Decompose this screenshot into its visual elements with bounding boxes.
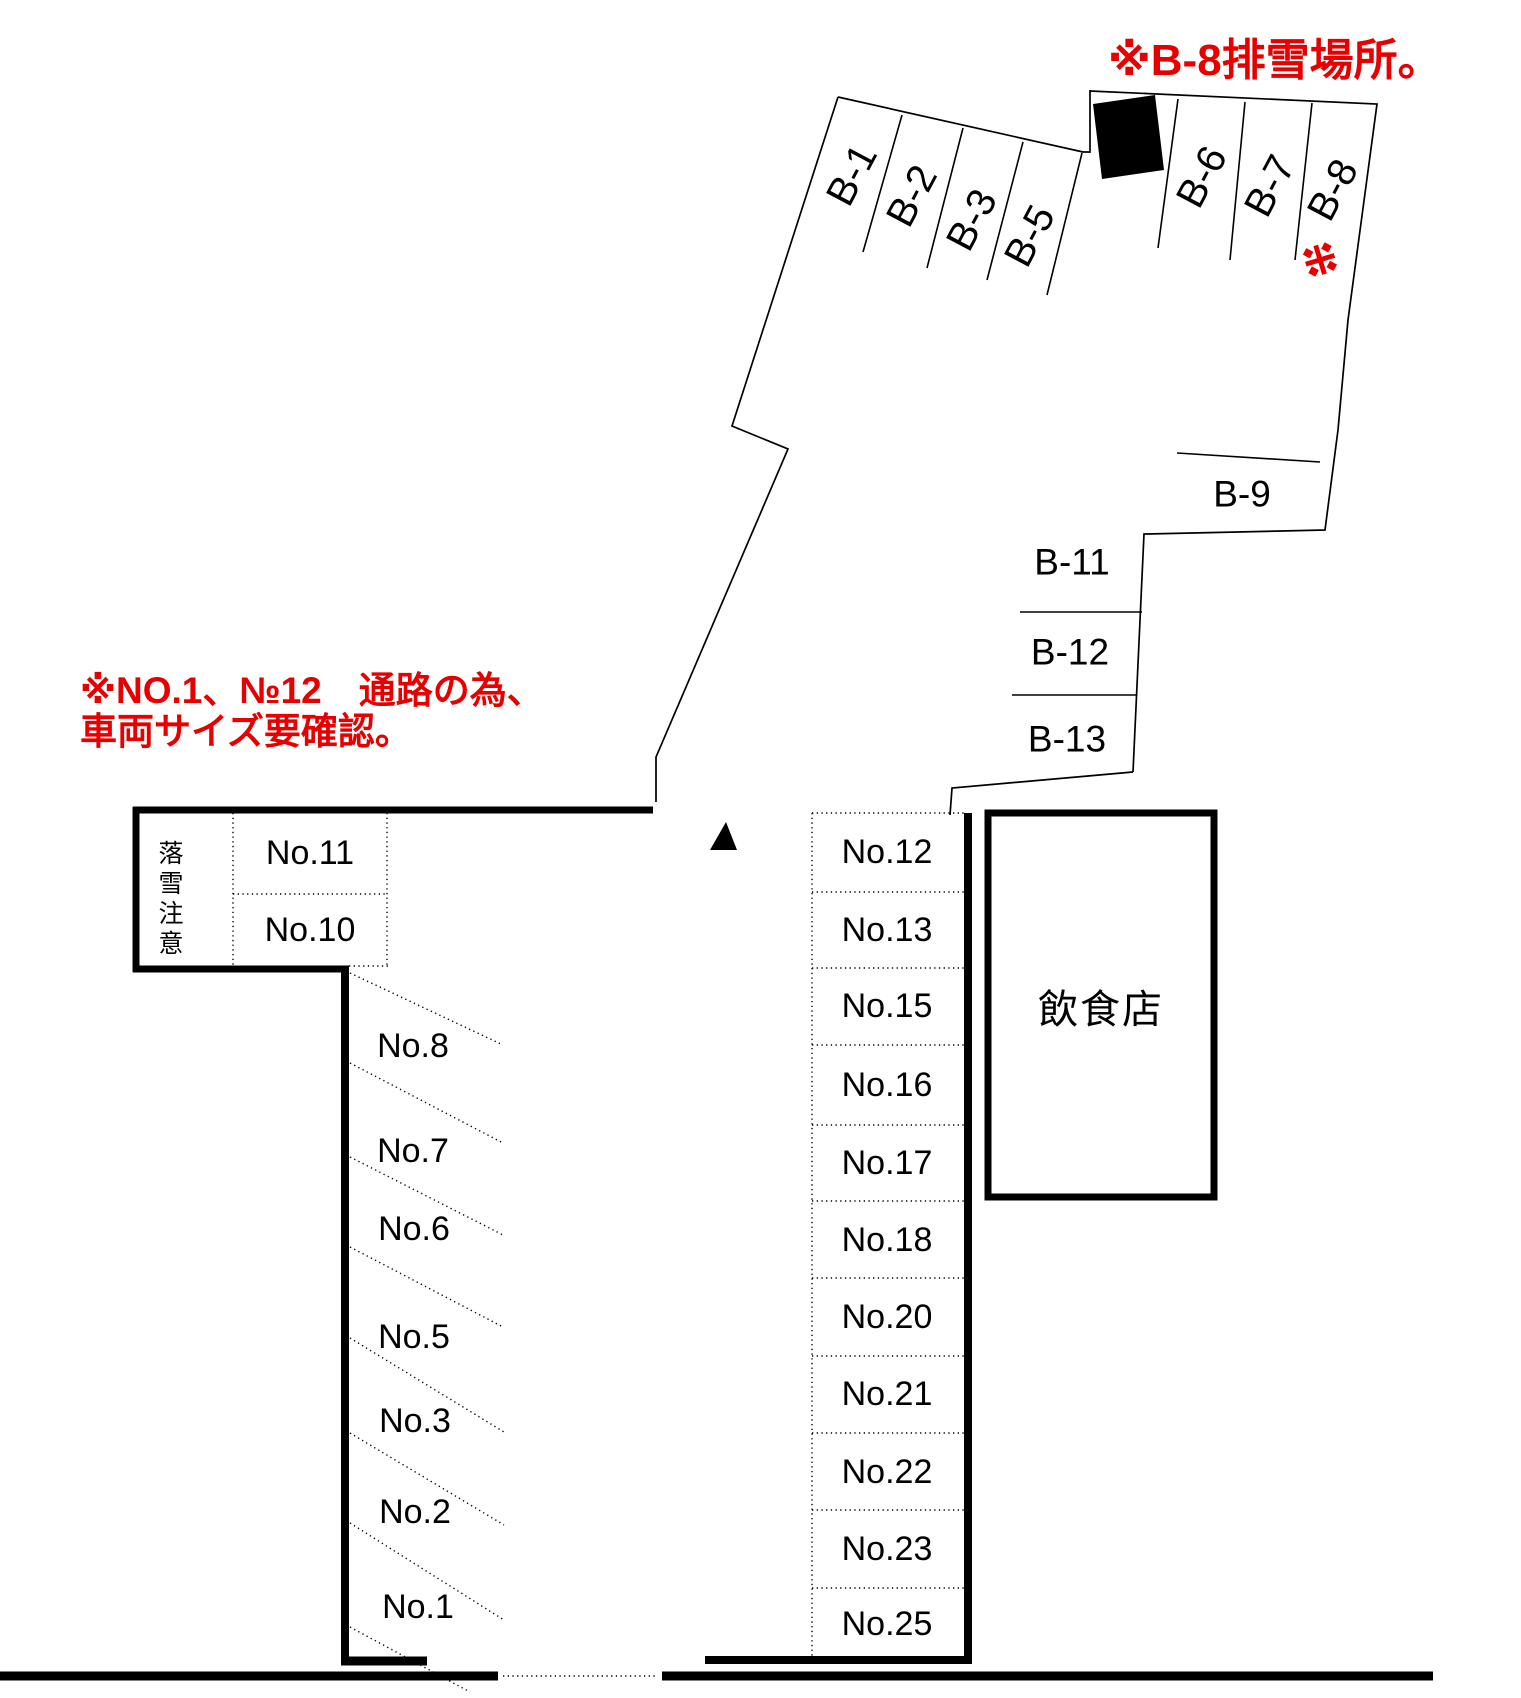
- stall-label-no16: No.16: [842, 1068, 933, 1102]
- aisle-size-note-line1: ※NO.1、№12 通路の為、: [80, 670, 544, 711]
- stall-label-no20: No.20: [842, 1300, 933, 1334]
- stall-label-no12: No.12: [842, 835, 933, 869]
- stall-label-no25: No.25: [842, 1607, 933, 1641]
- aisle-size-note-line2: 車両サイズ要確認。: [80, 711, 544, 752]
- b13-bottom-connector: [950, 772, 1133, 815]
- stall-label-no21: No.21: [842, 1377, 933, 1411]
- stall-label-no22: No.22: [842, 1455, 933, 1489]
- stall-label-no11: No.11: [266, 836, 354, 870]
- restaurant-label: 飲食店: [1038, 977, 1164, 1035]
- stall-label-no23: No.23: [842, 1532, 933, 1566]
- plan-linework: [0, 0, 1521, 1698]
- stall-label-no15: No.15: [842, 989, 933, 1023]
- stall-label-no6: No.6: [378, 1212, 450, 1246]
- boundary-top-left-edge: [838, 90, 1090, 152]
- stall-label-no1: No.1: [382, 1590, 454, 1624]
- diag-divider-2: [350, 1063, 503, 1143]
- stall-label-no18: No.18: [842, 1223, 933, 1257]
- stall-label-no5: No.5: [378, 1320, 450, 1354]
- divider-b9-top: [1177, 453, 1320, 462]
- stall-label-no8: No.8: [377, 1029, 449, 1063]
- direction-triangle-marker: [710, 822, 737, 850]
- stall-label-b13: B-13: [1028, 721, 1106, 758]
- stall-label-no17: No.17: [842, 1146, 933, 1180]
- stall-label-no13: No.13: [842, 913, 933, 947]
- divider-b6-left: [1158, 99, 1178, 248]
- boundary-left-slant: [656, 97, 838, 802]
- stall-label-b12: B-12: [1031, 634, 1109, 671]
- aisle-size-note: ※NO.1、№12 通路の為、 車両サイズ要確認。: [80, 670, 544, 752]
- stall-label-b9: B-9: [1213, 476, 1271, 513]
- stall-label-no2: No.2: [379, 1495, 451, 1529]
- stall-label-b11: B-11: [1034, 544, 1109, 581]
- divider-b6-b7: [1230, 102, 1245, 260]
- stall-label-no7: No.7: [377, 1134, 449, 1168]
- b8-snow-note: ※B-8排雪場所。: [1108, 24, 1442, 88]
- diag-divider-4: [350, 1247, 503, 1327]
- stall-label-no10: No.10: [265, 913, 356, 947]
- snow-pile-block: [1093, 95, 1164, 179]
- stall-label-no3: No.3: [379, 1404, 451, 1438]
- parking-lot-map: ※B-8排雪場所。 ※NO.1、№12 通路の為、 車両サイズ要確認。 B-1 …: [0, 0, 1521, 1698]
- falling-snow-warning: 落雪注意: [156, 840, 181, 960]
